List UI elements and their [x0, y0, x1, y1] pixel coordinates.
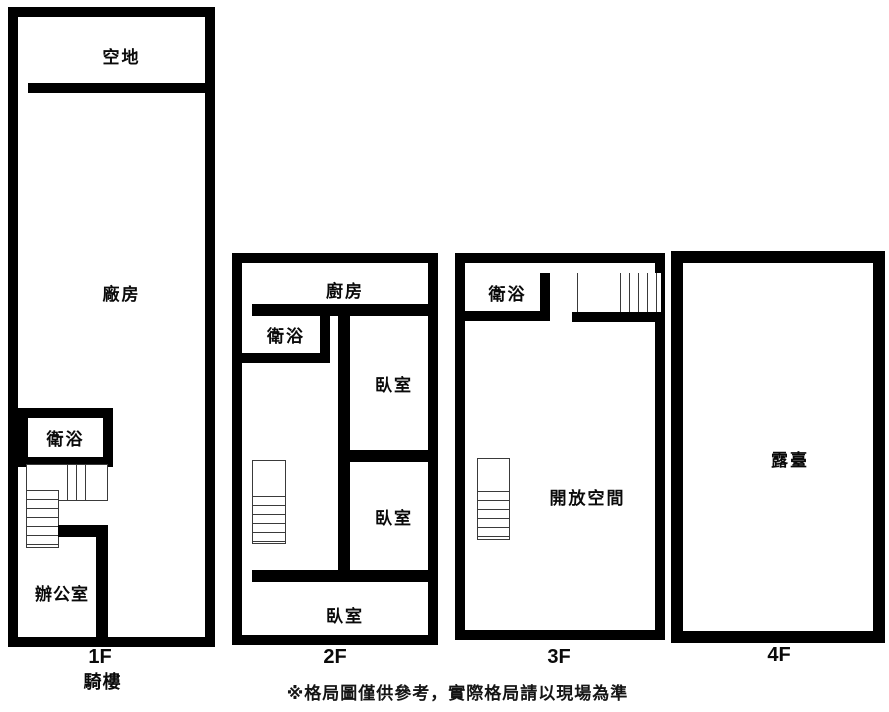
floor-label-3f: 3F — [519, 646, 599, 669]
staircase-3f-lower — [477, 458, 510, 540]
room-label-open-space: 開放空間 — [515, 481, 660, 511]
stair-treads — [59, 465, 88, 500]
wall-below-vacant-lot — [28, 83, 215, 93]
floor-outline-4f: 露臺 — [671, 251, 885, 643]
wall-bathroom-3f-bottom — [465, 311, 550, 321]
room-label-office: 辦公室 — [28, 577, 96, 607]
staircase-2f — [252, 460, 286, 544]
floor-outline-3f: 衛浴 開放空間 — [455, 253, 665, 640]
room-label-bedroom-top: 臥室 — [350, 368, 438, 398]
room-label-vacant-lot: 空地 — [28, 27, 215, 83]
room-label-bedroom-middle: 臥室 — [350, 501, 438, 531]
floor-sublabel-arcade: 騎樓 — [60, 668, 145, 694]
room-label-kitchen: 廚房 — [252, 275, 438, 303]
room-label-terrace: 露臺 — [695, 443, 885, 473]
staircase-1f-lower-flight — [26, 490, 59, 548]
floor-label-1f: 1F — [60, 646, 140, 669]
staircase-3f-upper — [577, 273, 661, 312]
wall-below-3f-upper-stairs — [572, 312, 665, 322]
wall-office-right — [96, 525, 108, 647]
room-label-bedroom-bottom: 臥室 — [252, 599, 438, 629]
floor-outline-2f: 廚房 衛浴 臥室 臥室 臥室 — [232, 253, 438, 645]
floor-outline-1f: 空地 廠房 衛浴 辦公室 — [8, 7, 215, 647]
wall-2f-bottom-bedroom-top — [252, 570, 438, 582]
room-label-bathroom-2f: 衛浴 — [252, 316, 320, 353]
wall-bathroom-2f-bottom — [242, 353, 330, 363]
disclaimer-text: ※格局圖僅供參考，實際格局請以現場為準 — [235, 679, 680, 704]
room-label-bathroom-1f: 衛浴 — [47, 425, 85, 450]
room-label-factory: 廠房 — [28, 275, 215, 309]
stair-treads — [612, 273, 662, 312]
room-bathroom-1f: 衛浴 — [18, 408, 113, 467]
stair-treads — [478, 483, 509, 539]
room-label-bathroom-3f: 衛浴 — [475, 273, 540, 311]
floor-plan-canvas: 空地 廠房 衛浴 辦公室 1F 騎樓 廚房 衛浴 臥室 — [0, 0, 889, 712]
floor-label-2f: 2F — [295, 646, 375, 669]
stair-treads — [27, 491, 58, 547]
stair-treads — [253, 488, 285, 543]
floor-label-4f: 4F — [739, 644, 819, 667]
wall-2f-bedroom-separator — [338, 450, 438, 462]
wall-2f-center-divider — [338, 304, 350, 582]
